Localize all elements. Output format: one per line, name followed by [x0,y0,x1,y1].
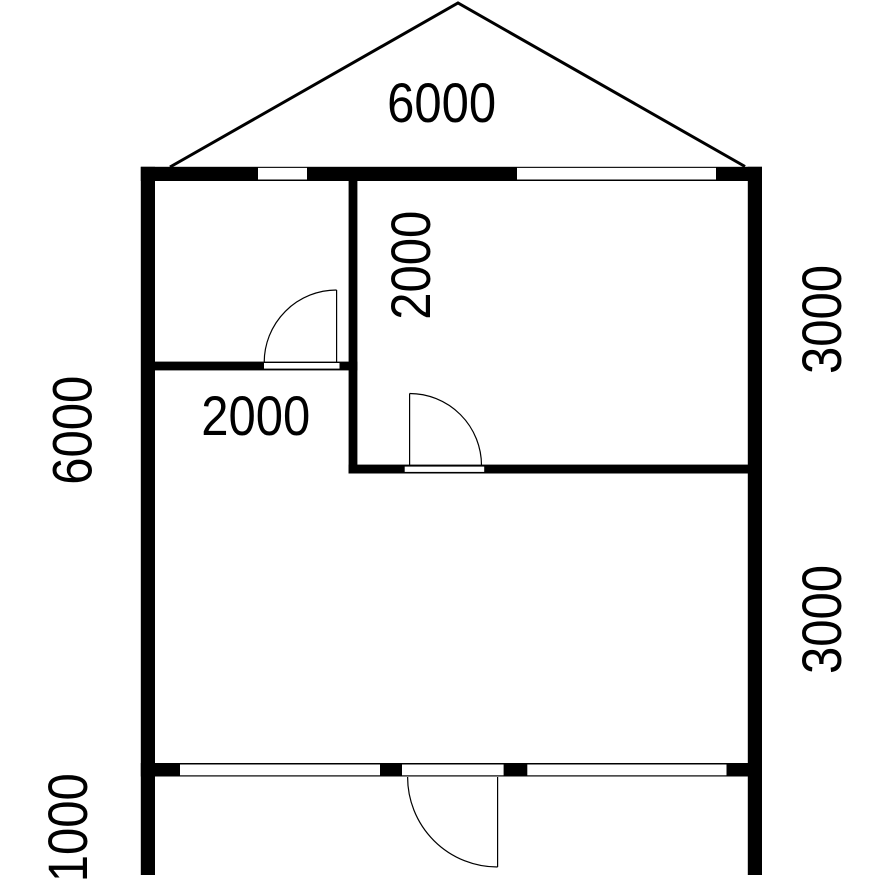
svg-text:6000: 6000 [387,71,496,134]
svg-text:2000: 2000 [201,384,310,447]
svg-text:1000: 1000 [36,773,99,882]
svg-text:3000: 3000 [790,265,853,374]
svg-text:3000: 3000 [790,565,853,674]
svg-text:2000: 2000 [379,211,442,320]
svg-text:6000: 6000 [41,376,104,485]
